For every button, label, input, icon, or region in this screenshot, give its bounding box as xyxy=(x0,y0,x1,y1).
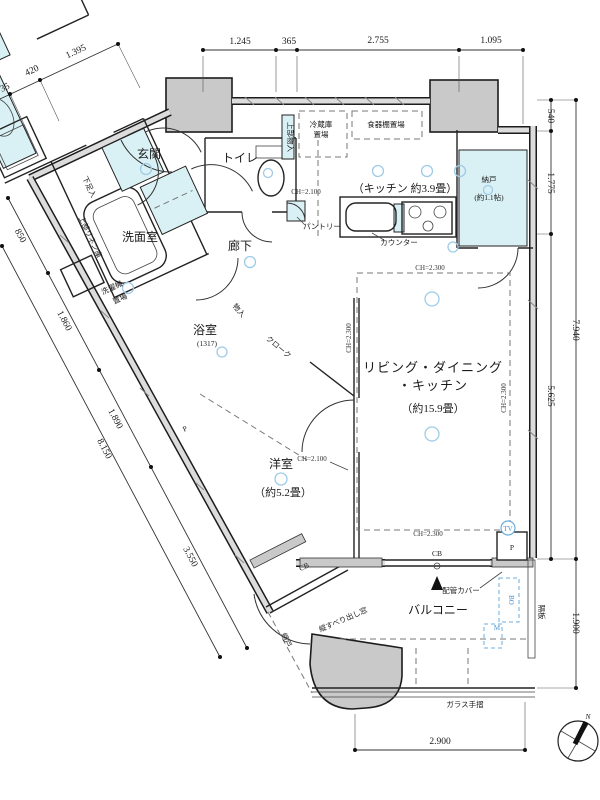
dim-label: 1.095 xyxy=(480,36,502,46)
pillar-top-right xyxy=(430,80,498,132)
dim-label: 365 xyxy=(282,37,297,47)
label-p-left: P xyxy=(181,424,189,434)
label-screen-door: 網戸 xyxy=(279,631,295,649)
dim-left: 850 1.860 1.890 8.150 3.550 xyxy=(0,196,249,659)
room-label-bath: 浴室 xyxy=(193,322,217,337)
dim-label: 1.245 xyxy=(229,37,251,47)
label-shoe-box: 下足入 xyxy=(80,175,98,200)
label-partition-panel: 隔板 xyxy=(537,605,547,620)
label-counter: カウンター xyxy=(380,238,418,247)
shoe-box xyxy=(0,4,10,69)
dim-label: 5.625 xyxy=(545,385,555,407)
wing-walls xyxy=(0,0,209,320)
room-label-nando: 納戸 xyxy=(482,174,497,184)
room-label-bedroom-size: （約5.2畳） xyxy=(254,485,312,499)
ch-ld-right: CH=2.300 xyxy=(500,383,508,413)
ch-ld-left: CH=2.300 xyxy=(345,323,353,353)
room-label-bath-size: (1317) xyxy=(197,339,217,348)
label-pantry: パントリー xyxy=(303,222,341,231)
ld-ceiling-zone xyxy=(357,273,510,530)
dim-label: 7.940 xyxy=(570,319,580,341)
entry-triangle-marker xyxy=(431,576,443,590)
room-label-ld-1: リビング・ダイニング xyxy=(363,360,503,375)
dim-label: 420 xyxy=(24,64,41,79)
toilet-bowl xyxy=(258,160,284,196)
label-p-right: P xyxy=(510,543,514,552)
room-label-ld-size: （約15.9畳） xyxy=(401,401,464,415)
label-casement-window: 縦すべり出し窓 xyxy=(317,604,369,634)
svg-text:TV: TV xyxy=(503,525,512,533)
ch-balcony-sash: CH=2.300 xyxy=(413,530,443,538)
room-label-ld-2: ・キッチン xyxy=(398,378,468,393)
room-label-bedroom: 洋室 xyxy=(269,456,293,471)
floor-plan-svg: 1.245 365 2.755 1.095 35 420 1.395 540 1… xyxy=(0,0,600,800)
label-cupboard: 食器棚置場 xyxy=(367,119,405,129)
label-m: M xyxy=(494,624,501,632)
pillar-top-left xyxy=(166,78,232,132)
dim-label: 2.900 xyxy=(429,737,451,747)
tv-icon: TV xyxy=(501,521,515,535)
room-label-nando-size: (約1.1帖) xyxy=(474,192,504,202)
label-pipe-cover: 配管カバー xyxy=(442,585,480,595)
label-bo: BO xyxy=(507,595,515,605)
compass-icon: N xyxy=(558,712,598,761)
pillar-balcony xyxy=(310,634,402,709)
dim-label: 1.395 xyxy=(64,43,88,61)
dim-label: 1.860 xyxy=(54,309,73,333)
room-label-genkan: 玄関 xyxy=(137,146,161,161)
label-cb-center: CB xyxy=(432,549,442,558)
label-glass-rail: ガラス手摺 xyxy=(446,699,483,709)
dim-bottom: 2.900 xyxy=(353,702,527,752)
room-label-toilet: トイレ xyxy=(222,151,258,165)
partition-panel-shape xyxy=(528,560,535,658)
dim-label: 1.900 xyxy=(570,612,580,634)
dim-label: 1.775 xyxy=(545,172,555,194)
label-storage: 物入 xyxy=(231,301,249,319)
dim-label: 540 xyxy=(545,109,555,124)
dim-right: 540 1.775 5.625 7.940 1.900 xyxy=(537,98,580,690)
label-fridge-1: 冷蔵庫 xyxy=(310,119,333,129)
north-label: N xyxy=(584,712,591,721)
room-label-hallway: 廊下 xyxy=(228,238,252,253)
label-linen: 上部リネン庫 xyxy=(77,214,105,259)
room-label-washroom: 洗面室 xyxy=(122,229,158,244)
ch-bedroom: CH=2.100 xyxy=(297,455,327,463)
room-label-balcony: バルコニー xyxy=(408,603,468,617)
dim-label: 8.150 xyxy=(94,437,113,461)
label-fridge-2: 置場 xyxy=(314,129,329,139)
label-cloak: クローク xyxy=(264,334,293,360)
label-upper-storage: 上部物入 xyxy=(286,122,296,152)
dim-label: 3.550 xyxy=(180,545,199,569)
room-label-kitchen: （キッチン 約3.9畳） xyxy=(353,181,458,195)
window-sill xyxy=(300,558,382,567)
dashed-lines xyxy=(200,273,530,693)
ch-kitchen: CH=2.100 xyxy=(291,188,321,196)
vanity-counter xyxy=(0,66,36,168)
dim-label: 2.755 xyxy=(367,36,389,46)
floor-plan-page: 1.245 365 2.755 1.095 35 420 1.395 540 1… xyxy=(0,0,600,800)
ch-ld-top: CH=2.300 xyxy=(415,264,445,272)
